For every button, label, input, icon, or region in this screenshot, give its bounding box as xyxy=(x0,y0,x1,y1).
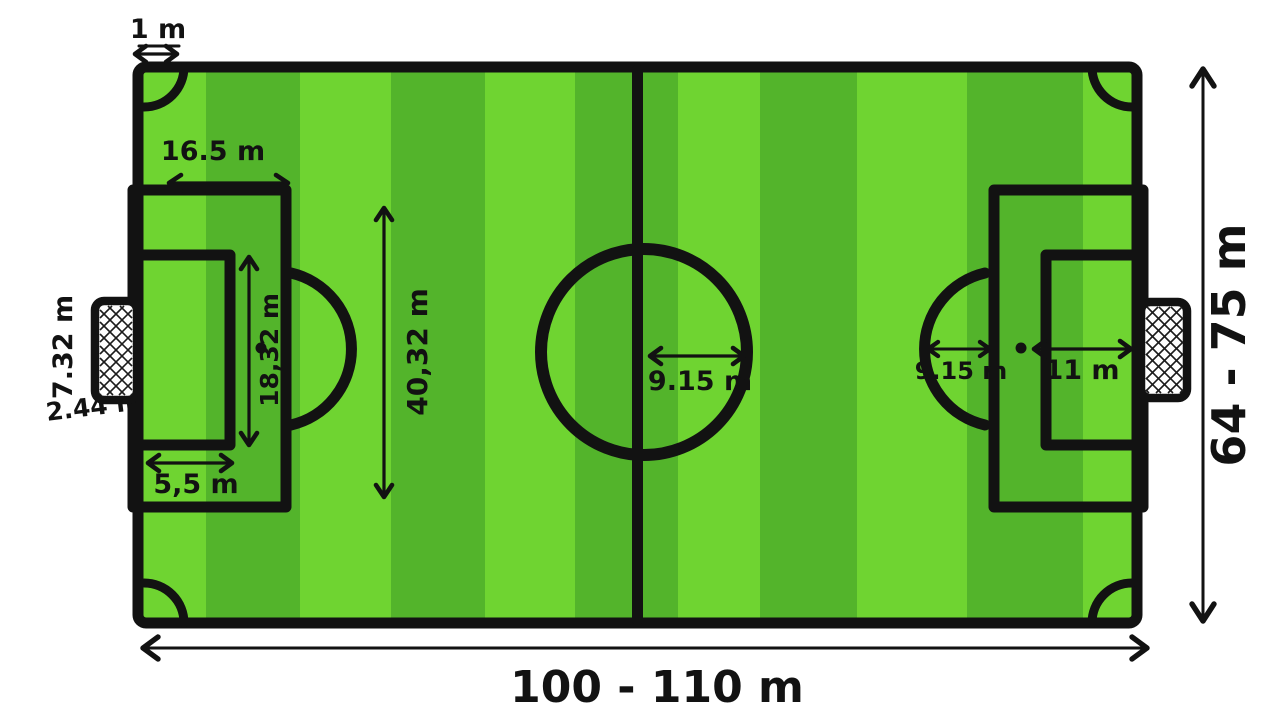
penalty-arc-radius-label: 9.15 m xyxy=(915,357,1008,385)
goal-area-depth-dimension: 5,5 m xyxy=(148,455,239,500)
pitch-width-label: 64 - 75 m xyxy=(1202,223,1256,466)
pitch-length-dimension: 100 - 110 m xyxy=(143,637,1147,713)
penalty-area-depth-label: 16.5 m xyxy=(161,136,265,167)
grass-stripe xyxy=(575,66,678,624)
pitch-width-dimension: 64 - 75 m xyxy=(1192,69,1256,621)
centre-circle-radius-label: 9.15 m xyxy=(648,366,752,397)
pitch-diagram-canvas: 1 m 16.5 m 18,32 m 40,32 m xyxy=(0,0,1280,720)
penalty-mark-distance-dimension: 11 m xyxy=(1034,341,1131,386)
goal-area-width-label: 18,32 m xyxy=(255,293,284,407)
goal-area-depth-label: 5,5 m xyxy=(153,469,238,500)
corner-arc-label: 1 m xyxy=(130,14,186,45)
grass-stripe xyxy=(760,66,857,624)
penalty-spot-right xyxy=(1016,343,1027,354)
penalty-mark-distance-label: 11 m xyxy=(1044,355,1119,386)
pitch-length-label: 100 - 110 m xyxy=(510,662,804,713)
pitch-diagram: 1 m 16.5 m 18,32 m 40,32 m xyxy=(0,0,1280,720)
centre-circle-radius-dimension: 9.15 m xyxy=(648,348,752,397)
goal-width-label: 7.32 m xyxy=(48,295,79,399)
penalty-area-width-label: 40,32 m xyxy=(401,288,434,416)
corner-arc-dimension: 1 m xyxy=(130,14,186,62)
